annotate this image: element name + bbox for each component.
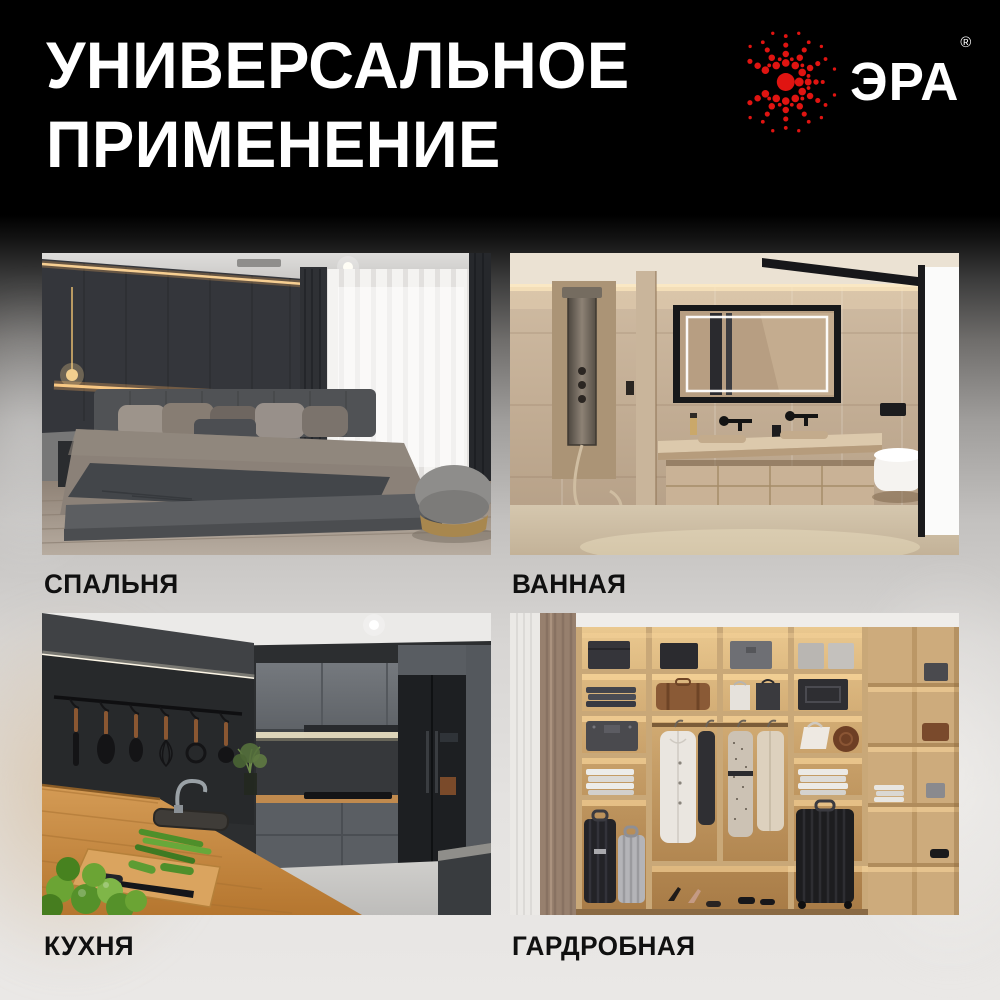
window (918, 265, 959, 537)
toilet (872, 448, 924, 503)
counter-crock (440, 777, 456, 795)
room-gallery: СПАЛЬНЯ (42, 253, 959, 977)
page-title: УНИВЕРСАЛЬНОЕ ПРИМЕНЕНИЕ (46, 26, 630, 184)
island (438, 843, 491, 915)
bathroom-label: ВАННАЯ (510, 555, 946, 613)
curtains (510, 613, 576, 915)
fridge (398, 645, 491, 865)
base-cabinets (256, 792, 398, 869)
bedroom-photo (42, 253, 491, 555)
red-dot-sunburst-icon (732, 26, 844, 138)
registered-trademark: ® (961, 34, 973, 51)
kitchen-photo (42, 613, 491, 915)
ceiling (510, 613, 959, 627)
led-mirror (673, 305, 841, 403)
promo-page: УНИВЕРСАЛЬНОЕ ПРИМЕНЕНИЕ ЭРА® (0, 0, 1000, 1000)
tile-bedroom: СПАЛЬНЯ (42, 253, 491, 613)
bedroom-label: СПАЛЬНЯ (42, 555, 478, 613)
header: УНИВЕРСАЛЬНОЕ ПРИМЕНЕНИЕ ЭРА® (0, 0, 1000, 235)
right-shelving (868, 627, 959, 915)
wardrobe-label: ГАРДРОБНАЯ (510, 915, 946, 977)
flush-plate (880, 403, 906, 416)
tile-wardrobe: ГАРДРОБНАЯ (510, 613, 959, 977)
brand-logo: ЭРА® (732, 26, 974, 138)
tile-bathroom: ВАННАЯ (510, 253, 959, 613)
title-line-2: ПРИМЕНЕНИЕ (46, 105, 630, 184)
brand-name: ЭРА® (850, 55, 971, 109)
bathroom-photo (510, 253, 959, 555)
tile-kitchen: КУХНЯ (42, 613, 491, 977)
white-handbag (800, 727, 830, 749)
vanity (658, 431, 882, 513)
wardrobe-photo (510, 613, 959, 915)
title-line-1: УНИВЕРСАЛЬНОЕ (46, 26, 630, 105)
armchair (412, 465, 491, 543)
kitchen-label: КУХНЯ (42, 915, 478, 977)
